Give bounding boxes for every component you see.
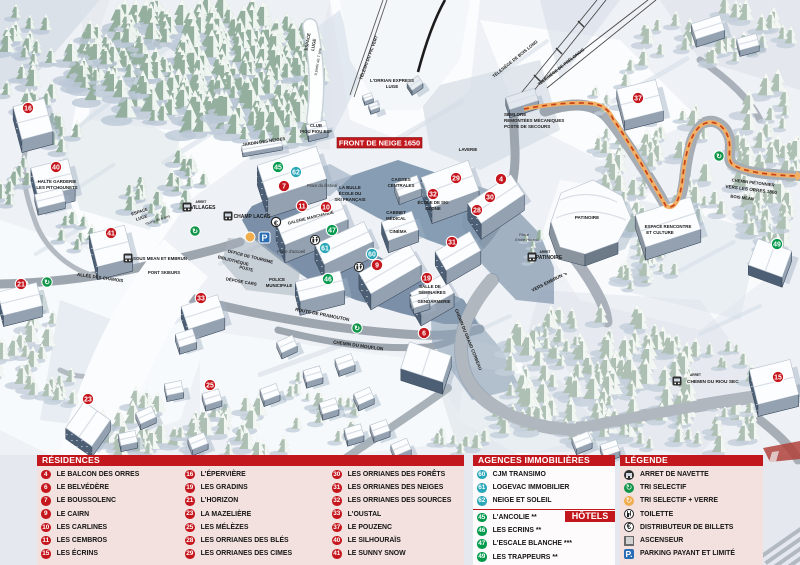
svg-text:LUGE: LUGE	[386, 84, 399, 89]
svg-text:CHEMIN DU RIOU SEC: CHEMIN DU RIOU SEC	[687, 379, 739, 385]
svg-text:↻: ↻	[192, 228, 198, 235]
svg-text:VILLAGES: VILLAGES	[190, 205, 216, 211]
svg-text:CENTRALES: CENTRALES	[388, 183, 415, 188]
svg-text:CHAMP LACAS: CHAMP LACAS	[234, 214, 272, 220]
svg-text:ARRET: ARRET	[690, 373, 701, 377]
svg-text:62: 62	[292, 169, 300, 176]
svg-text:GENDARMERIE: GENDARMERIE	[418, 299, 451, 304]
svg-text:23: 23	[84, 396, 92, 403]
svg-text:32: 32	[429, 191, 437, 198]
svg-text:ESPACE RENCONTRE: ESPACE RENCONTRE	[645, 224, 692, 229]
svg-text:11: 11	[298, 203, 305, 210]
svg-text:49: 49	[773, 241, 781, 248]
svg-text:28: 28	[473, 207, 481, 214]
svg-text:↻: ↻	[716, 153, 722, 160]
svg-text:P: P	[261, 233, 267, 243]
svg-text:ÉCOLE DE SKI: ÉCOLE DE SKI	[418, 200, 449, 205]
svg-text:PATINOIRE: PATINOIRE	[536, 255, 563, 261]
svg-text:7: 7	[282, 183, 286, 190]
svg-text:LA BULLE: LA BULLE	[339, 185, 361, 190]
svg-text:MÉDICAL: MÉDICAL	[386, 216, 406, 221]
svg-text:PONT SKIEURS: PONT SKIEURS	[148, 270, 180, 275]
svg-text:41: 41	[107, 230, 115, 237]
svg-text:CABINET: CABINET	[386, 210, 406, 215]
svg-text:6: 6	[422, 330, 426, 337]
svg-text:9: 9	[375, 262, 379, 269]
svg-text:L'ORRIAN EXPRESS: L'ORRIAN EXPRESS	[370, 78, 414, 83]
svg-text:21: 21	[17, 281, 25, 288]
svg-text:SOUS MEAN ET EMBRUN: SOUS MEAN ET EMBRUN	[133, 256, 187, 261]
svg-text:46: 46	[324, 276, 332, 283]
svg-text:15: 15	[774, 374, 782, 381]
svg-text:19: 19	[423, 275, 431, 282]
svg-text:REMONTÉES MÉCANIQUES: REMONTÉES MÉCANIQUES	[504, 116, 564, 123]
svg-text:SKI FRANÇAIS: SKI FRANÇAIS	[334, 197, 365, 202]
svg-text:↻: ↻	[44, 279, 50, 286]
svg-text:OZONE: OZONE	[425, 206, 441, 211]
svg-text:45: 45	[274, 164, 282, 171]
svg-text:ARRET: ARRET	[540, 250, 551, 254]
svg-text:30: 30	[486, 194, 494, 201]
svg-text:60: 60	[368, 251, 376, 258]
svg-text:PIOU PIOU ESF: PIOU PIOU ESF	[300, 129, 332, 134]
svg-text:37: 37	[634, 95, 642, 102]
svg-text:40: 40	[52, 164, 60, 171]
svg-text:POLICE: POLICE	[269, 277, 285, 282]
svg-text:CINÉMA: CINÉMA	[389, 229, 407, 234]
svg-text:SÉMINAIRES: SÉMINAIRES	[418, 290, 445, 295]
svg-text:16: 16	[24, 105, 32, 112]
svg-text:MUNICIPALE: MUNICIPALE	[266, 283, 293, 288]
svg-text:47: 47	[328, 227, 336, 234]
svg-text:POSTE DE SECOURS: POSTE DE SECOURS	[504, 124, 550, 129]
svg-text:FRONT DE NEIGE 1650: FRONT DE NEIGE 1650	[339, 139, 420, 148]
svg-text:31: 31	[448, 239, 456, 246]
svg-text:29: 29	[452, 175, 460, 182]
svg-text:25: 25	[206, 382, 214, 389]
svg-text:CLUB: CLUB	[310, 123, 322, 128]
svg-text:Emile Hodoul: Emile Hodoul	[515, 237, 539, 242]
svg-text:SEMLORE: SEMLORE	[504, 112, 526, 117]
svg-text:10: 10	[322, 204, 330, 211]
svg-text:SALLE DE: SALLE DE	[419, 284, 441, 289]
svg-text:ÉCOLE DU: ÉCOLE DU	[339, 191, 362, 196]
svg-text:PATINOIRE: PATINOIRE	[575, 215, 599, 220]
svg-text:ET CULTURE: ET CULTURE	[646, 230, 674, 235]
svg-text:↻: ↻	[354, 325, 360, 332]
svg-text:ARRET: ARRET	[196, 200, 207, 204]
svg-text:Place du festival: Place du festival	[307, 183, 339, 188]
svg-text:33: 33	[197, 295, 205, 302]
svg-text:4: 4	[499, 176, 503, 183]
svg-text:61: 61	[321, 245, 329, 252]
svg-text:HALTE GARDERIE: HALTE GARDERIE	[38, 179, 77, 184]
svg-text:CAISSES: CAISSES	[391, 177, 410, 182]
svg-text:LAVERIE: LAVERIE	[459, 147, 478, 152]
svg-text:Place d'accueil: Place d'accueil	[277, 249, 306, 254]
svg-text:LES PITCHOUNETS: LES PITCHOUNETS	[36, 185, 77, 190]
